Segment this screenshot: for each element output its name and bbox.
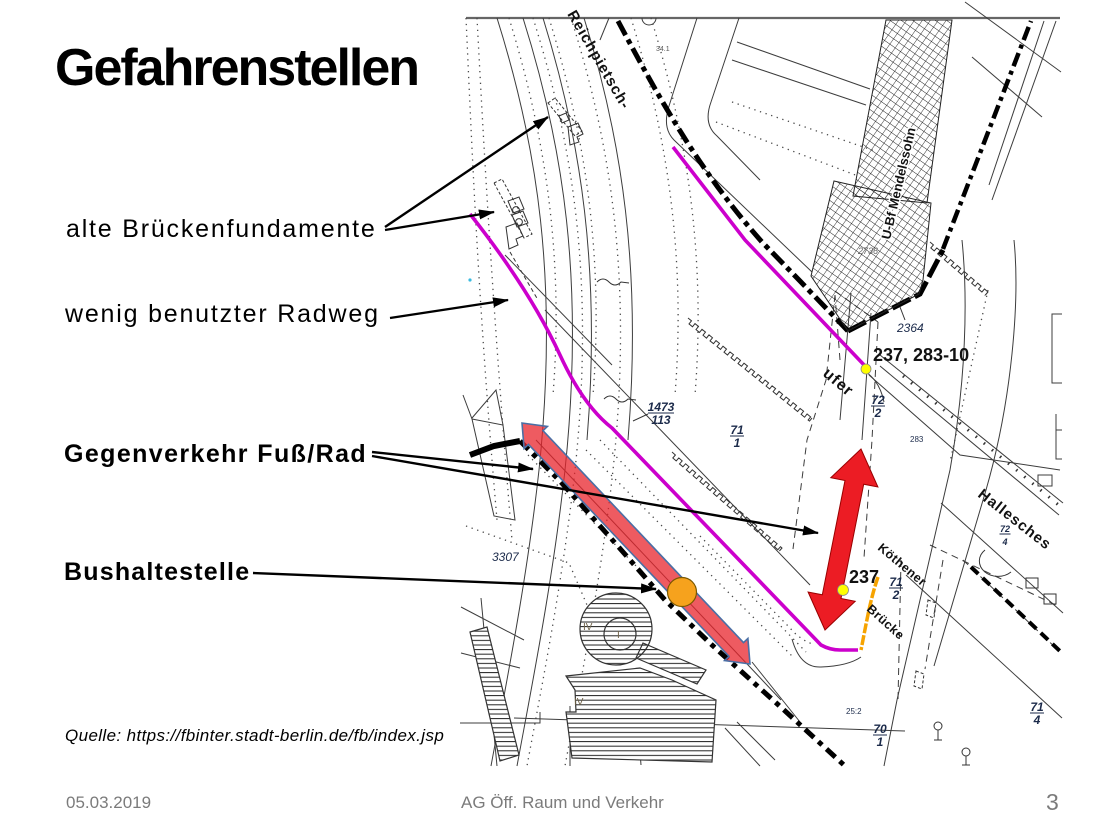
svg-text:2: 2 xyxy=(874,406,882,420)
svg-text:Hallesches: Hallesches xyxy=(975,486,1055,554)
svg-text:72: 72 xyxy=(871,393,885,407)
svg-text:1: 1 xyxy=(734,436,741,450)
svg-text:1473: 1473 xyxy=(648,400,675,414)
svg-text:Brücke: Brücke xyxy=(864,602,907,643)
svg-text:71: 71 xyxy=(889,575,903,589)
svg-text:2736: 2736 xyxy=(857,246,878,256)
svg-text:25:2: 25:2 xyxy=(846,707,862,716)
svg-text:3307: 3307 xyxy=(492,550,520,564)
svg-text:71: 71 xyxy=(1030,700,1044,714)
svg-text:72: 72 xyxy=(1000,524,1010,534)
svg-text:4: 4 xyxy=(1033,713,1041,727)
svg-text:I: I xyxy=(617,630,620,641)
svg-text:71: 71 xyxy=(730,423,744,437)
svg-text:1: 1 xyxy=(877,735,884,749)
svg-text:113: 113 xyxy=(651,413,670,427)
svg-text:Reichpietsch-: Reichpietsch- xyxy=(564,8,634,113)
svg-text:2364: 2364 xyxy=(896,321,924,335)
svg-text:283: 283 xyxy=(910,435,924,444)
svg-text:70: 70 xyxy=(873,722,887,736)
svg-text:4: 4 xyxy=(1001,537,1007,547)
svg-text:IV: IV xyxy=(583,622,593,633)
svg-text:237: 237 xyxy=(849,567,879,587)
svg-text:IV: IV xyxy=(574,697,584,708)
svg-text:2: 2 xyxy=(892,588,900,602)
svg-text:34.1: 34.1 xyxy=(656,46,670,53)
svg-text:237, 283-10: 237, 283-10 xyxy=(873,345,969,365)
svg-text:ufer: ufer xyxy=(819,365,856,400)
